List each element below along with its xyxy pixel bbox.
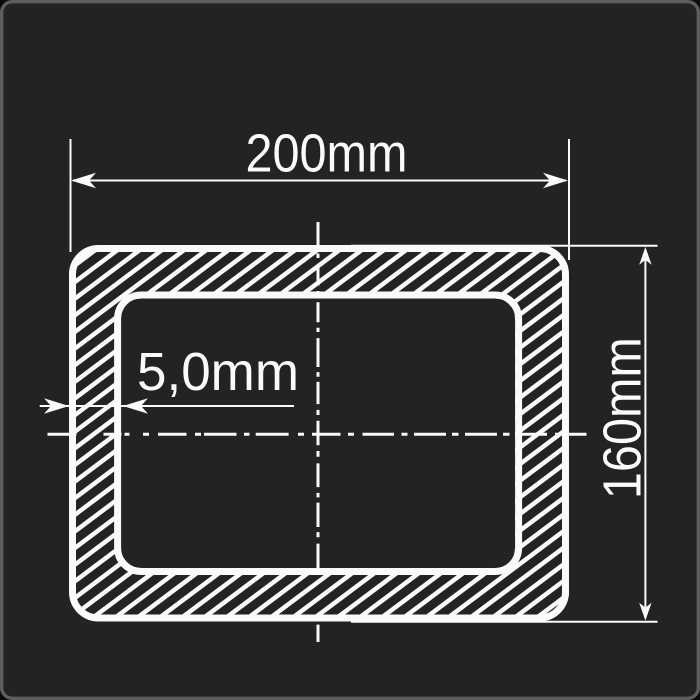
svg-text:200mm: 200mm <box>246 124 408 184</box>
svg-text:5,0mm: 5,0mm <box>137 342 299 402</box>
svg-text:160mm: 160mm <box>593 337 653 499</box>
